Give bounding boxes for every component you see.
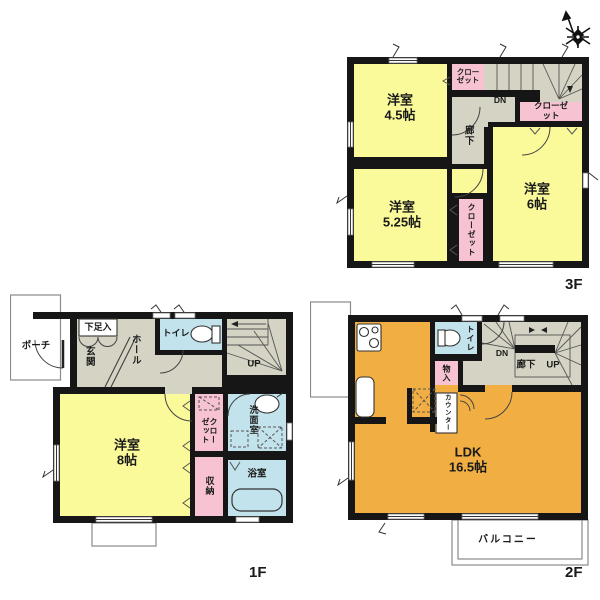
- closet-right-label: クローゼット: [532, 101, 570, 120]
- toilet-label-1f: トイレ: [162, 328, 189, 338]
- room-label-ldk: LDK 16.5帖: [449, 445, 487, 474]
- room-label-bedroom8: 洋室 8帖: [114, 438, 140, 467]
- room-label-bedroom525: 洋室 5.25帖: [383, 200, 421, 229]
- closet-label-1f: クローゼット: [201, 417, 217, 446]
- entrance-label: 玄関: [84, 344, 94, 368]
- stairs-dn-label-3f: DN: [494, 96, 506, 106]
- toilet-label-2f: トイレ: [466, 324, 474, 352]
- toilet-tank-icon: [212, 326, 220, 343]
- bathroom-label: 浴室: [247, 470, 266, 481]
- terrace-outline: [92, 523, 156, 546]
- hallway-label-2f: 廊下: [516, 361, 535, 372]
- floor-plan-page: 洋室 4.5帖 洋室 5.25帖 洋室 6帖 クロー ゼット クローゼット クロ…: [0, 0, 600, 600]
- hall-label: ホール: [130, 332, 140, 368]
- floor-1f: ポーチ 下足入 玄関 ホール トイレ UP 洋室 8帖 クローゼット 収納 洗面…: [10, 293, 305, 558]
- kitchen-sink-icon: [356, 377, 374, 417]
- storage-label-2f: 物入: [442, 364, 450, 383]
- storage-label: 収納: [205, 475, 214, 497]
- stairs-up-label-2f: UP: [546, 361, 559, 372]
- north-arrow-icon: [563, 12, 590, 48]
- balcony-label: バルコニー: [478, 534, 538, 545]
- stairs-dn-label-2f: DN: [496, 349, 508, 359]
- room-label-bedroom45: 洋室 4.5帖: [384, 93, 415, 122]
- floor-1f-drawing: [10, 293, 305, 558]
- toilet-tank-icon-2f: [438, 330, 445, 346]
- floor-3f: 洋室 4.5帖 洋室 5.25帖 洋室 6帖 クロー ゼット クローゼット クロ…: [347, 57, 589, 272]
- floor-name-3f: 3F: [565, 276, 583, 293]
- roof-outline: [311, 302, 351, 397]
- hallway-label-3f: 廊下: [463, 123, 473, 147]
- porch-label: ポーチ: [22, 342, 51, 353]
- stairs-up-label-1f: UP: [247, 360, 260, 371]
- floor-2f-drawing: [310, 297, 600, 577]
- closet-mid-label: クローゼット: [467, 200, 475, 260]
- toilet-bowl-icon: [191, 326, 213, 342]
- floor-2f: LDK 16.5帖 トイレ 物入 カウンター DN 廊下 UP バルコニー: [310, 297, 600, 577]
- floor-name-2f: 2F: [565, 564, 583, 581]
- counter-label: カウンター: [443, 394, 450, 432]
- shoe-cabinet-label: 下足入: [84, 322, 111, 332]
- washroom-label: 洗面室: [249, 404, 258, 436]
- porch-outline: [11, 295, 61, 380]
- closet-top-label: クロー ゼット: [457, 69, 480, 86]
- sink-icon: [255, 395, 279, 413]
- room-label-bedroom6: 洋室 6帖: [524, 182, 550, 211]
- floor-name-1f: 1F: [249, 564, 267, 581]
